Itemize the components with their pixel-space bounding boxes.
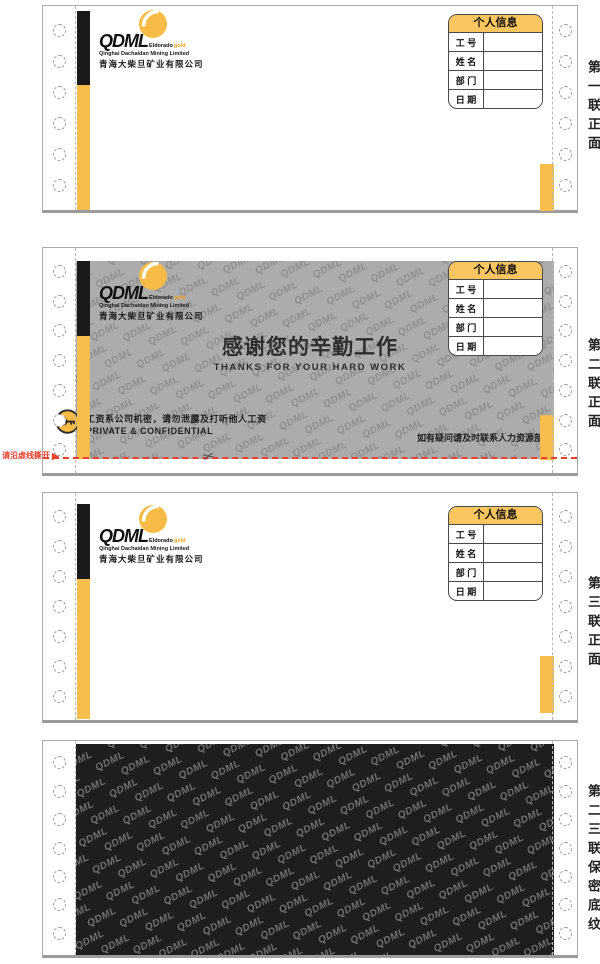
logo-brand: Eldoradogold [149, 538, 185, 544]
tractor-hole [53, 295, 66, 308]
tractor-hole [559, 756, 572, 769]
tractor-hole [559, 295, 572, 308]
tractor-hole [53, 756, 66, 769]
tractor-hole [53, 55, 66, 68]
field-label: 日 期 [449, 337, 484, 355]
tractor-hole [53, 86, 66, 99]
tractor-hole [53, 785, 66, 798]
logo-wordmark: QDMLEldoradogold [99, 526, 185, 547]
tractor-hole [559, 630, 572, 643]
left-black-bar [77, 11, 90, 85]
info-box-title: 个人信息 [449, 507, 542, 525]
field-label: 日 期 [449, 90, 484, 108]
field-label: 姓 名 [449, 299, 484, 317]
tractor-strip-left [43, 248, 76, 473]
info-box-title: 个人信息 [449, 15, 542, 33]
tractor-hole [559, 870, 572, 883]
tractor-hole [559, 384, 572, 397]
info-row: 部 门 [449, 71, 542, 90]
tractor-strip-right [552, 741, 577, 955]
sheet-3-front: QDMLEldoradogold Qinghai Dachaidan Minin… [42, 492, 578, 723]
tractor-hole [559, 354, 572, 367]
field-value [484, 337, 542, 355]
personal-info-box: 个人信息 工 号 姓 名 部 门 日 期 [448, 261, 543, 356]
logo-wordmark: QDMLEldoradogold [99, 283, 185, 304]
field-label: 姓 名 [449, 52, 484, 70]
tractor-hole [53, 540, 66, 553]
info-row: 部 门 [449, 563, 542, 582]
tractor-hole [559, 570, 572, 583]
tractor-hole [559, 148, 572, 161]
tractor-hole [53, 870, 66, 883]
sheet-2-front: QDML QDML QDML QDML QDML QDML QDML QDML … [42, 247, 578, 476]
tractor-hole [53, 600, 66, 613]
tractor-hole [559, 842, 572, 855]
field-label: 姓 名 [449, 544, 484, 562]
tractor-hole [53, 842, 66, 855]
field-value [484, 52, 542, 70]
logo-wordmark: QDMLEldoradogold [99, 31, 185, 52]
tractor-strip-right [552, 248, 577, 473]
tractor-hole [53, 660, 66, 673]
side-label-sheet1: 第一联正面 [584, 60, 600, 155]
info-row: 工 号 [449, 280, 542, 299]
left-yellow-bar [77, 336, 90, 459]
tractor-hole [53, 384, 66, 397]
tractor-hole [559, 414, 572, 427]
info-row: 部 门 [449, 318, 542, 337]
sheet-1-front: QDMLEldoradogold Qinghai Dachaidan Minin… [42, 5, 578, 213]
company-name-cn: 青海大柴旦矿业有限公司 [99, 553, 204, 565]
info-row: 姓 名 [449, 52, 542, 71]
tractor-hole [559, 785, 572, 798]
confidential-en: PRIVATE & CONFIDENTIAL [86, 426, 267, 436]
tear-dashed-line [43, 457, 577, 459]
tractor-hole [53, 414, 66, 427]
confidential-cn: 工资系公司机密，请勿泄露及打听他人工资 [86, 412, 267, 425]
tractor-hole [559, 55, 572, 68]
company-name-cn: 青海大柴旦矿业有限公司 [99, 58, 204, 70]
left-yellow-bar [77, 85, 90, 210]
tear-instruction: 请沿虚线撕开 ▶ [2, 450, 59, 461]
side-label-sheet2: 第二联正面 [584, 338, 600, 433]
company-logo: QDMLEldoradogold Qinghai Dachaidan Minin… [99, 262, 229, 324]
left-black-bar [77, 261, 90, 336]
tractor-hole [559, 265, 572, 278]
personal-info-box: 个人信息 工 号 姓 名 部 门 日 期 [448, 14, 543, 109]
field-value [484, 544, 542, 562]
side-label-sheet3: 第三联正面 [584, 576, 600, 671]
tractor-hole [53, 117, 66, 130]
tractor-strip-left [43, 741, 76, 955]
company-logo: QDMLEldoradogold Qinghai Dachaidan Minin… [99, 505, 229, 567]
tractor-hole [559, 898, 572, 911]
logo-abbr: QDML [99, 526, 148, 546]
tractor-hole [559, 179, 572, 192]
info-row: 工 号 [449, 33, 542, 52]
tractor-strip-left [43, 493, 76, 720]
tractor-hole [559, 24, 572, 37]
info-row: 姓 名 [449, 544, 542, 563]
info-row: 姓 名 [449, 299, 542, 318]
info-row: 日 期 [449, 582, 542, 600]
tractor-hole [53, 570, 66, 583]
field-value [484, 563, 542, 581]
field-label: 工 号 [449, 280, 484, 298]
field-label: 工 号 [449, 525, 484, 543]
field-label: 部 门 [449, 563, 484, 581]
tractor-hole [559, 660, 572, 673]
tractor-hole [53, 354, 66, 367]
company-name-cn: 青海大柴旦矿业有限公司 [99, 310, 204, 322]
field-label: 日 期 [449, 582, 484, 600]
tractor-hole [53, 630, 66, 643]
tear-instruction-text: 请沿虚线撕开 [2, 450, 50, 461]
tractor-strip-right [552, 6, 577, 210]
field-label: 部 门 [449, 71, 484, 89]
info-box-title: 个人信息 [449, 262, 542, 280]
logo-abbr: QDML [99, 283, 148, 303]
tractor-hole [559, 600, 572, 613]
tractor-hole [559, 443, 572, 456]
side-label-sheet4: 第二三联保密底纹 [584, 784, 600, 936]
tractor-hole [559, 927, 572, 940]
logo-brand: Eldoradogold [149, 295, 185, 301]
field-value [484, 71, 542, 89]
tractor-hole [559, 510, 572, 523]
tractor-hole [559, 690, 572, 703]
tractor-hole [53, 179, 66, 192]
field-value [484, 582, 542, 600]
company-logo: QDMLEldoradogold Qinghai Dachaidan Minin… [99, 10, 229, 72]
field-value [484, 90, 542, 108]
watermark-pattern: QDML QDML QDML QDML QDML QDML QDML QDML … [76, 744, 554, 955]
field-label: 工 号 [449, 33, 484, 51]
arrow-right-icon: ▶ [52, 452, 59, 460]
tractor-hole [53, 927, 66, 940]
tractor-hole [53, 690, 66, 703]
field-value [484, 525, 542, 543]
left-black-bar [77, 504, 90, 579]
logo-brand: Eldoradogold [149, 43, 185, 49]
field-value [484, 318, 542, 336]
tractor-hole [559, 813, 572, 826]
tractor-hole [53, 898, 66, 911]
sheet-4-security-pattern: QDML QDML QDML QDML QDML QDML QDML QDML … [42, 740, 578, 958]
field-value [484, 33, 542, 51]
tractor-hole [53, 510, 66, 523]
tractor-strip-right [552, 493, 577, 720]
tractor-hole [53, 265, 66, 278]
tractor-hole [559, 324, 572, 337]
info-row: 日 期 [449, 337, 542, 355]
dark-watermark-area: QDML QDML QDML QDML QDML QDML QDML QDML … [76, 744, 554, 955]
logo-abbr: QDML [99, 31, 148, 51]
confidential-text: 工资系公司机密，请勿泄露及打听他人工资 PRIVATE & CONFIDENTI… [86, 412, 267, 436]
tractor-hole [53, 813, 66, 826]
field-value [484, 299, 542, 317]
tractor-hole [53, 148, 66, 161]
tractor-hole [559, 86, 572, 99]
field-value [484, 280, 542, 298]
tractor-hole [53, 324, 66, 337]
company-name-en: Qinghai Dachaidan Mining Limited [99, 546, 189, 552]
tractor-hole [559, 540, 572, 553]
tractor-hole [53, 24, 66, 37]
proof-canvas: QDMLEldoradogold Qinghai Dachaidan Minin… [0, 0, 600, 964]
personal-info-box: 个人信息 工 号 姓 名 部 门 日 期 [448, 506, 543, 601]
tractor-strip-left [43, 6, 76, 210]
headline-en: THANKS FOR YOUR HARD WORK [43, 362, 577, 373]
tractor-hole [559, 117, 572, 130]
info-row: 日 期 [449, 90, 542, 108]
company-name-en: Qinghai Dachaidan Mining Limited [99, 303, 189, 309]
info-row: 工 号 [449, 525, 542, 544]
left-yellow-bar [77, 579, 90, 719]
field-label: 部 门 [449, 318, 484, 336]
company-name-en: Qinghai Dachaidan Mining Limited [99, 51, 189, 57]
hr-contact-note: 如有疑问请及时联系人力资源部 [417, 431, 543, 444]
